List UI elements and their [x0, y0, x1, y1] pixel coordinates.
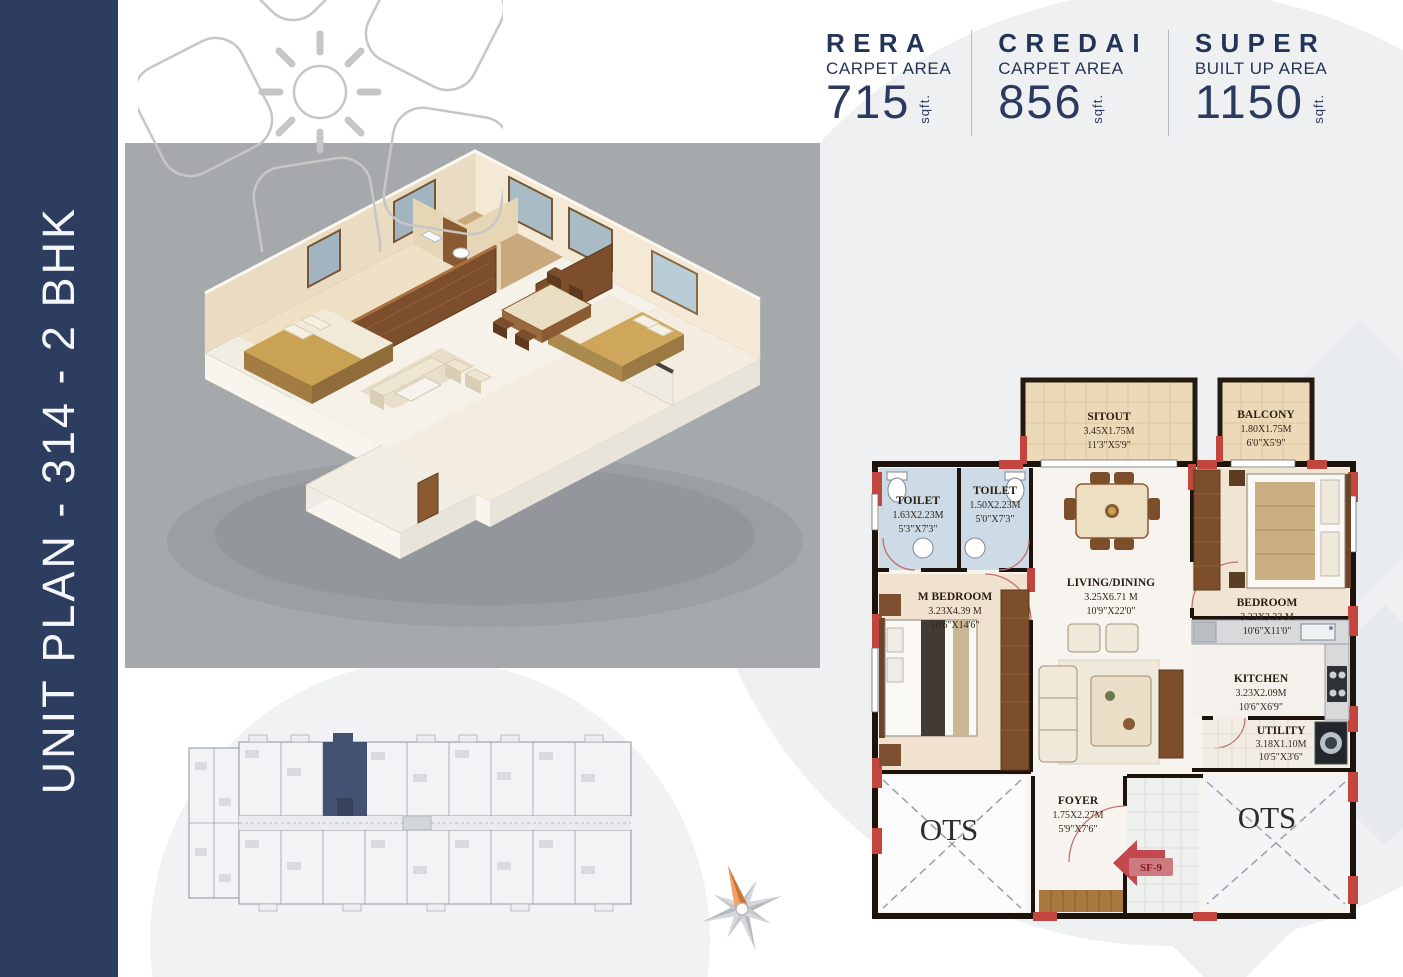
stat-value: 715 [826, 80, 910, 125]
ots-label: OTS [920, 812, 979, 847]
entrance-badge-label: SF-9 [1140, 862, 1163, 874]
room-label: KITCHEN [1234, 673, 1289, 685]
svg-text:3.23X4.39 M: 3.23X4.39 M [928, 606, 982, 617]
area-stats-panel: RERA CARPET AREA 715 sqft. CREDAI CARPET… [818, 30, 1380, 136]
svg-text:3.18X1.10M: 3.18X1.10M [1255, 739, 1306, 750]
stat-super-builtup: SUPER BUILT UP AREA 1150 sqft. [1168, 30, 1347, 136]
svg-text:1.63X2.23M: 1.63X2.23M [892, 510, 943, 521]
svg-text:6'0"X5'9": 6'0"X5'9" [1247, 438, 1286, 449]
ots-right: OTS [1203, 778, 1349, 908]
room-label: M BEDROOM [918, 591, 993, 603]
svg-text:10'6"X14'6": 10'6"X14'6" [931, 620, 980, 631]
stat-value: 1150 [1195, 80, 1304, 125]
page-title: UNIT PLAN - 314 - 2 BHK [0, 190, 118, 810]
svg-text:3.25X6.71 M: 3.25X6.71 M [1084, 592, 1138, 603]
svg-text:3.45X1.75M: 3.45X1.75M [1083, 426, 1134, 437]
stat-title: RERA [826, 30, 951, 56]
svg-text:5'9"X7'6": 5'9"X7'6" [1059, 824, 1098, 835]
svg-text:10'6"X11'0": 10'6"X11'0" [1243, 626, 1292, 637]
keyplan [183, 728, 648, 923]
svg-text:11'3"X5'9": 11'3"X5'9" [1087, 440, 1131, 451]
svg-text:10'5"X3'6": 10'5"X3'6" [1259, 752, 1303, 763]
stat-unit: sqft. [1311, 94, 1326, 124]
page: UNIT PLAN - 314 - 2 BHK RERA CARPET AREA… [0, 0, 1403, 977]
room-label: FOYER [1058, 795, 1099, 807]
svg-text:1.80X1.75M: 1.80X1.75M [1240, 424, 1291, 435]
ots-left: OTS [879, 776, 1025, 912]
compass-icon [695, 855, 795, 965]
room-label: TOILET [973, 485, 1017, 497]
room-label: LIVING/DINING [1067, 577, 1155, 589]
ots-label: OTS [1238, 800, 1297, 835]
stat-value: 856 [998, 80, 1082, 125]
svg-text:1.75X2.27M: 1.75X2.27M [1052, 810, 1103, 821]
stat-credai: CREDAI CARPET AREA 856 sqft. [971, 30, 1168, 136]
svg-text:5'0"X7'3": 5'0"X7'3" [976, 514, 1015, 525]
room-label: TOILET [896, 495, 940, 507]
room-balcony [1220, 380, 1312, 464]
svg-text:10'6"X6'9": 10'6"X6'9" [1239, 702, 1283, 713]
sidebar: UNIT PLAN - 314 - 2 BHK [0, 0, 118, 977]
stat-title: CREDAI [998, 30, 1148, 56]
keyplan-highlight-unit [323, 733, 367, 816]
entrance-badge: SF-9 [1129, 858, 1173, 876]
svg-text:5'3"X7'3": 5'3"X7'3" [899, 524, 938, 535]
room-label: BEDROOM [1237, 597, 1298, 609]
room-label: UTILITY [1257, 725, 1306, 737]
stat-rera: RERA CARPET AREA 715 sqft. [818, 30, 971, 136]
stat-unit: sqft. [917, 94, 932, 124]
room-label: SITOUT [1087, 411, 1131, 423]
stat-unit: sqft. [1090, 94, 1105, 124]
page-title-text: UNIT PLAN - 314 - 2 BHK [33, 206, 85, 794]
foyer-floor-strip [1039, 890, 1123, 912]
flower-logo-icon [138, 0, 503, 252]
svg-text:1.50X2.23M: 1.50X2.23M [969, 500, 1020, 511]
bedroom-furniture [1194, 470, 1351, 590]
stat-title: SUPER [1195, 30, 1327, 56]
svg-text:10'9"X22'0": 10'9"X22'0" [1087, 606, 1136, 617]
floorplan: OTS OTS [863, 376, 1370, 928]
room-label: BALCONY [1237, 409, 1295, 421]
svg-text:3.23X3.33 M: 3.23X3.33 M [1240, 612, 1294, 623]
svg-text:3.23X2.09M: 3.23X2.09M [1235, 688, 1286, 699]
